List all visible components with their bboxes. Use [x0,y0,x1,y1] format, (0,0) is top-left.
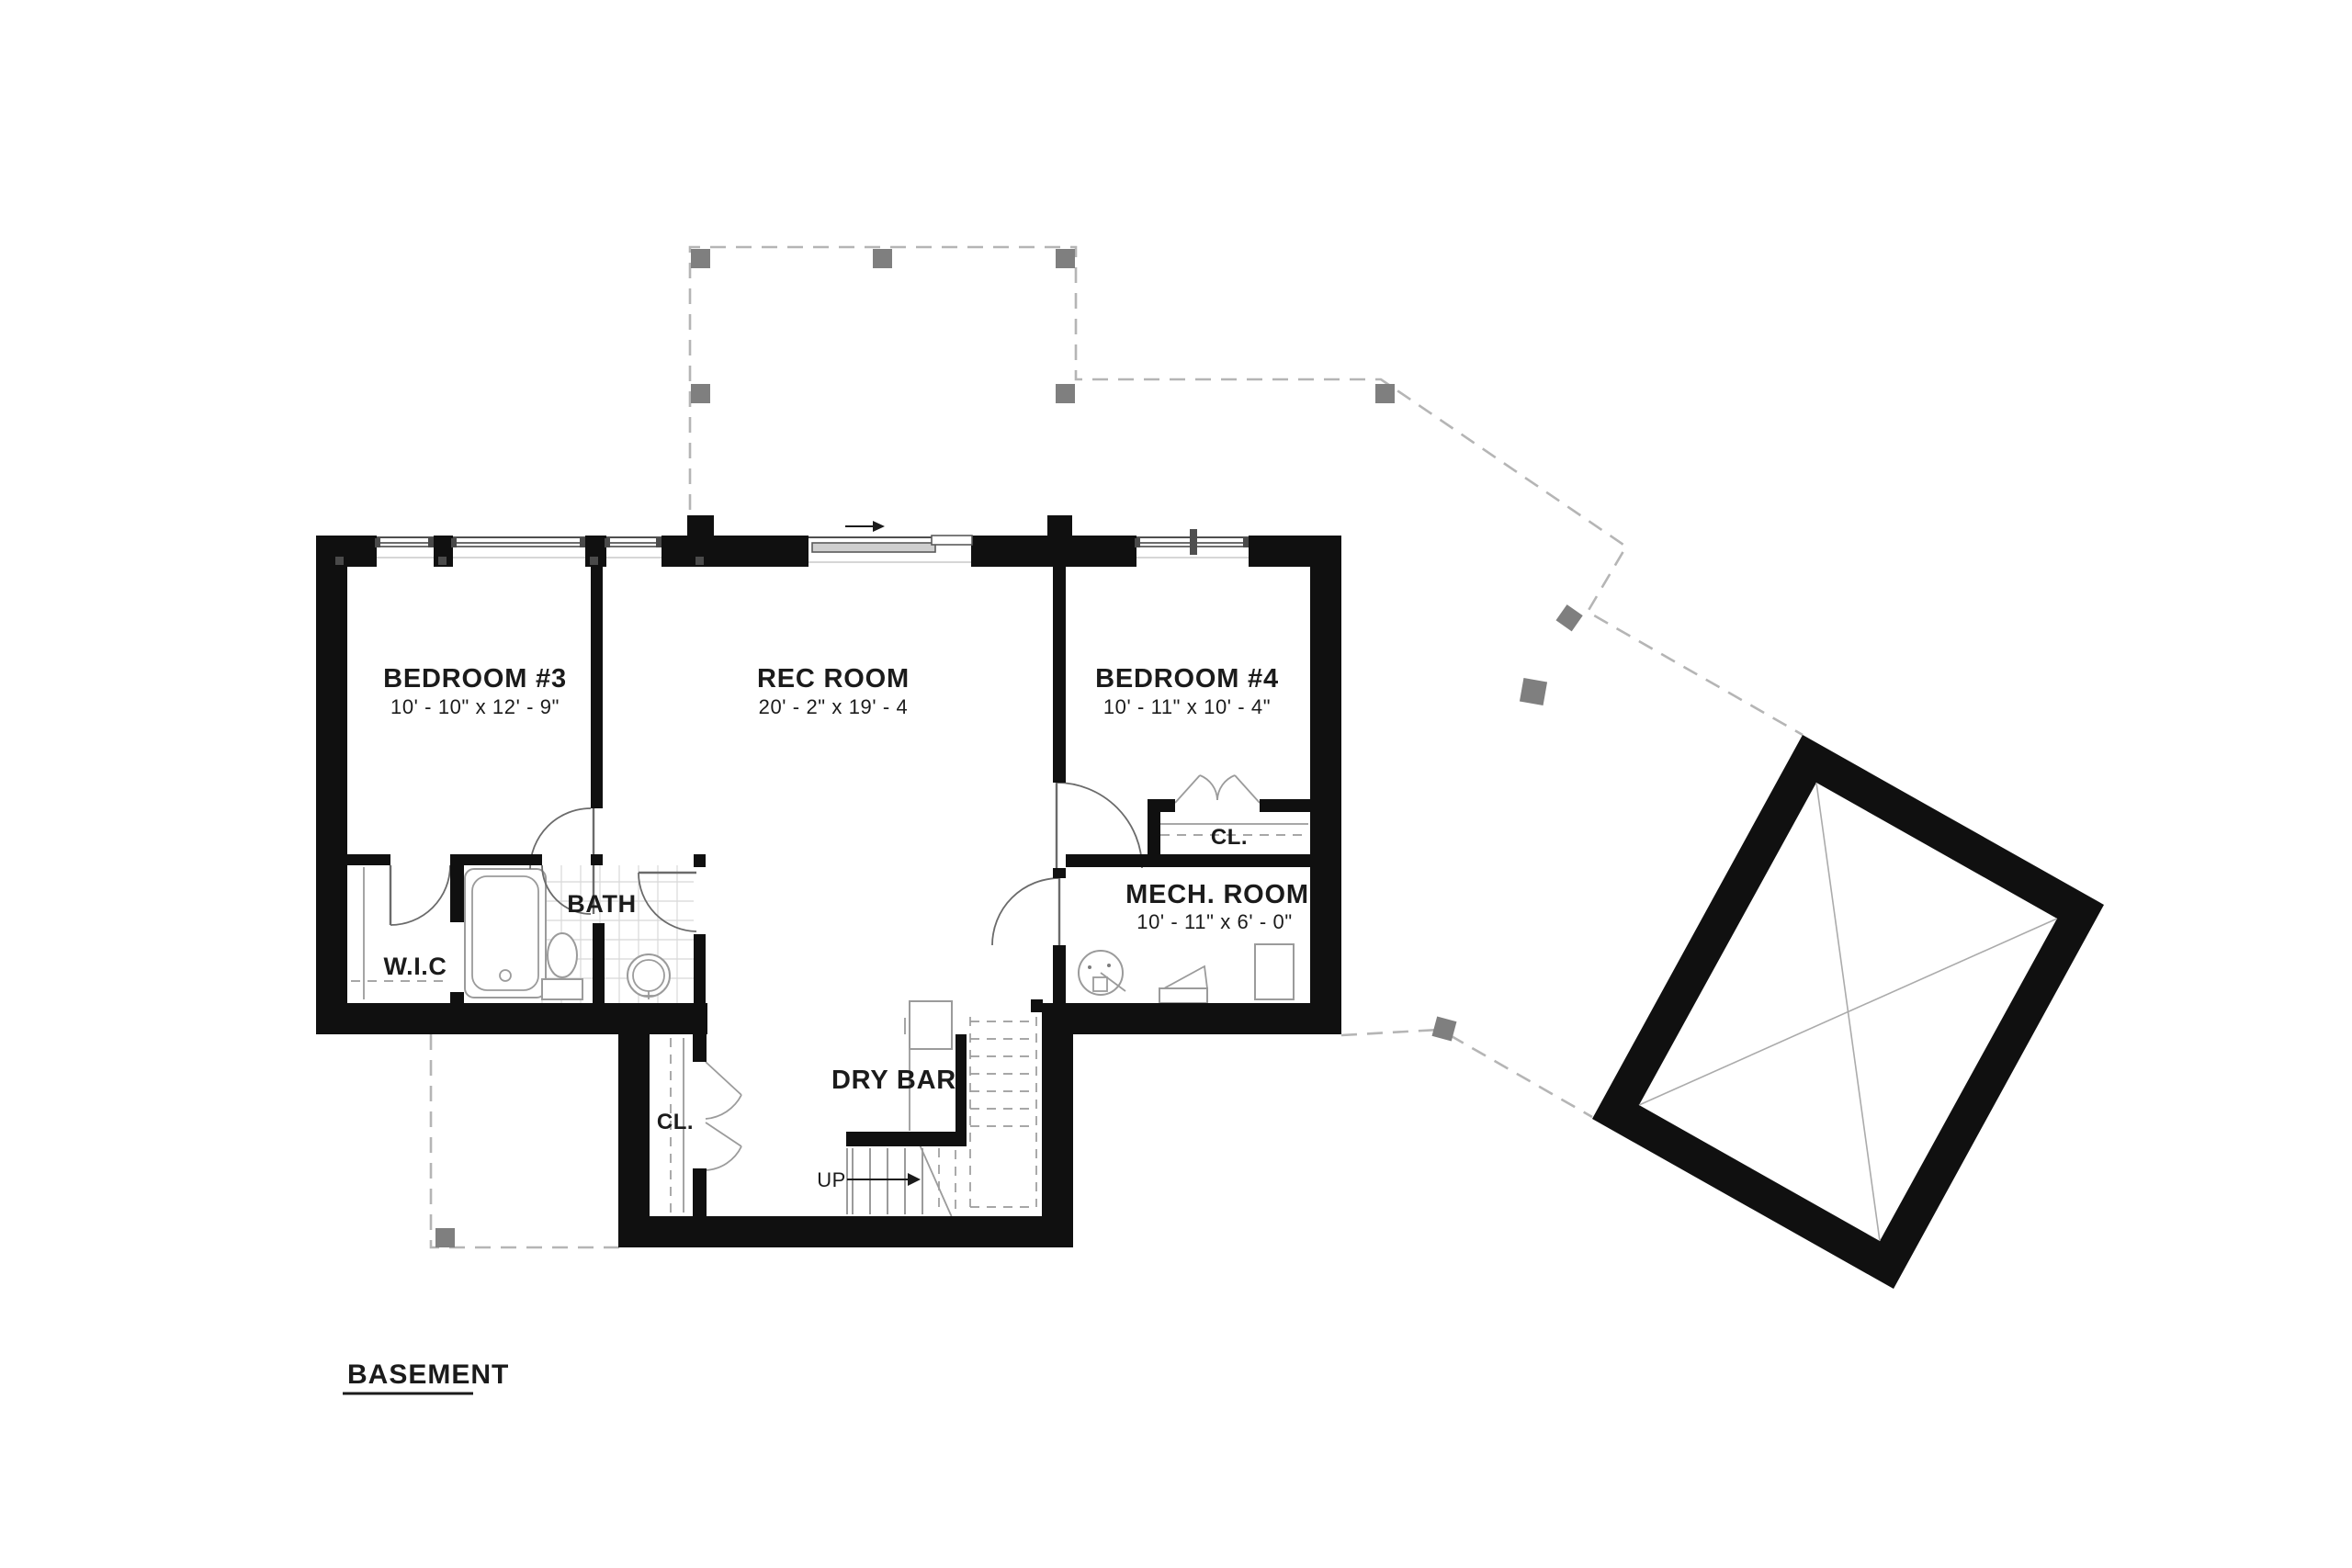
bedroom4-closet-label: CL. [1211,825,1248,850]
rec-room-label: REC ROOM [757,664,910,694]
water-heater [1255,944,1294,999]
rec-room-dimensions: 20' - 2" x 19' - 4 [759,695,909,718]
toilet [542,933,582,999]
up-label: UP [817,1168,846,1191]
mech-room-label: MECH. ROOM [1125,880,1309,909]
sheet-title: BASEMENT [343,1359,509,1393]
sliding-door [808,521,972,562]
garage [1592,735,2104,1289]
bathtub [465,869,546,998]
hall-closet-label: CL. [657,1110,694,1134]
dry-bar-label: DRY BAR [831,1066,956,1095]
bifold-doors [706,775,1260,1170]
bedroom4-label: BEDROOM #4 [1095,664,1279,694]
bath-label: BATH [567,890,636,918]
up-arrow [847,1173,921,1186]
bedroom3-dimensions: 10' - 10" x 12' - 9" [390,695,560,718]
floor-plan-drawing: BEDROOM #3 10' - 10" x 12' - 9" REC ROOM… [0,0,2352,1568]
bedroom3-label: BEDROOM #3 [383,664,567,694]
furnace [1079,951,1125,995]
wic-label: W.I.C [384,953,447,980]
bedroom4-dimensions: 10' - 11" x 10' - 4" [1103,695,1271,718]
sink [628,954,670,999]
electrical-panel [1159,966,1207,1003]
floor-plan-sheet: BEDROOM #3 10' - 10" x 12' - 9" REC ROOM… [0,0,2352,1568]
basement-title: BASEMENT [347,1359,509,1390]
mech-room-dimensions: 10' - 11" x 6' - 0" [1136,910,1293,933]
